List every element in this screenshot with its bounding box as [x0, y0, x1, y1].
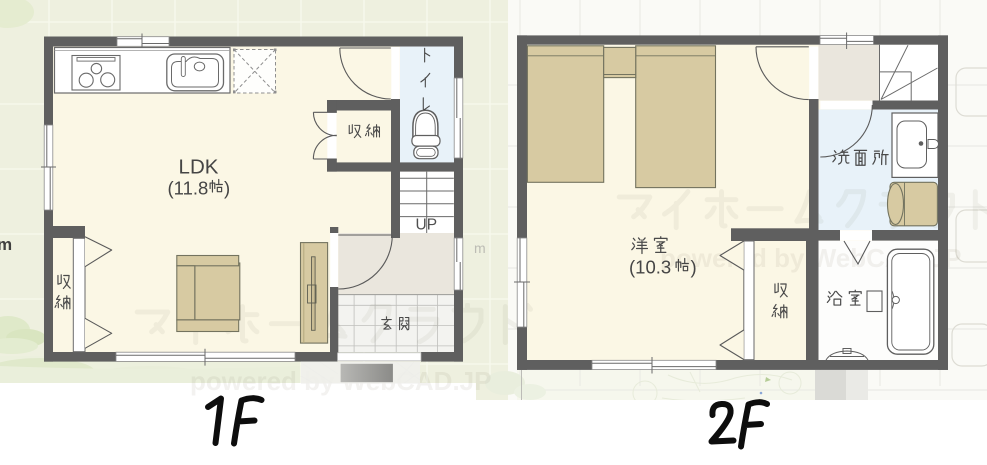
- svg-text:m: m: [0, 235, 12, 254]
- svg-text:m: m: [474, 240, 486, 256]
- svg-text:): ): [691, 257, 697, 278]
- svg-text:UP: UP: [416, 217, 438, 234]
- svg-text:(10.3: (10.3: [629, 257, 671, 278]
- svg-text:LDK: LDK: [179, 156, 219, 179]
- svg-text:): ): [224, 178, 230, 199]
- svg-text:(11.8: (11.8: [168, 178, 209, 199]
